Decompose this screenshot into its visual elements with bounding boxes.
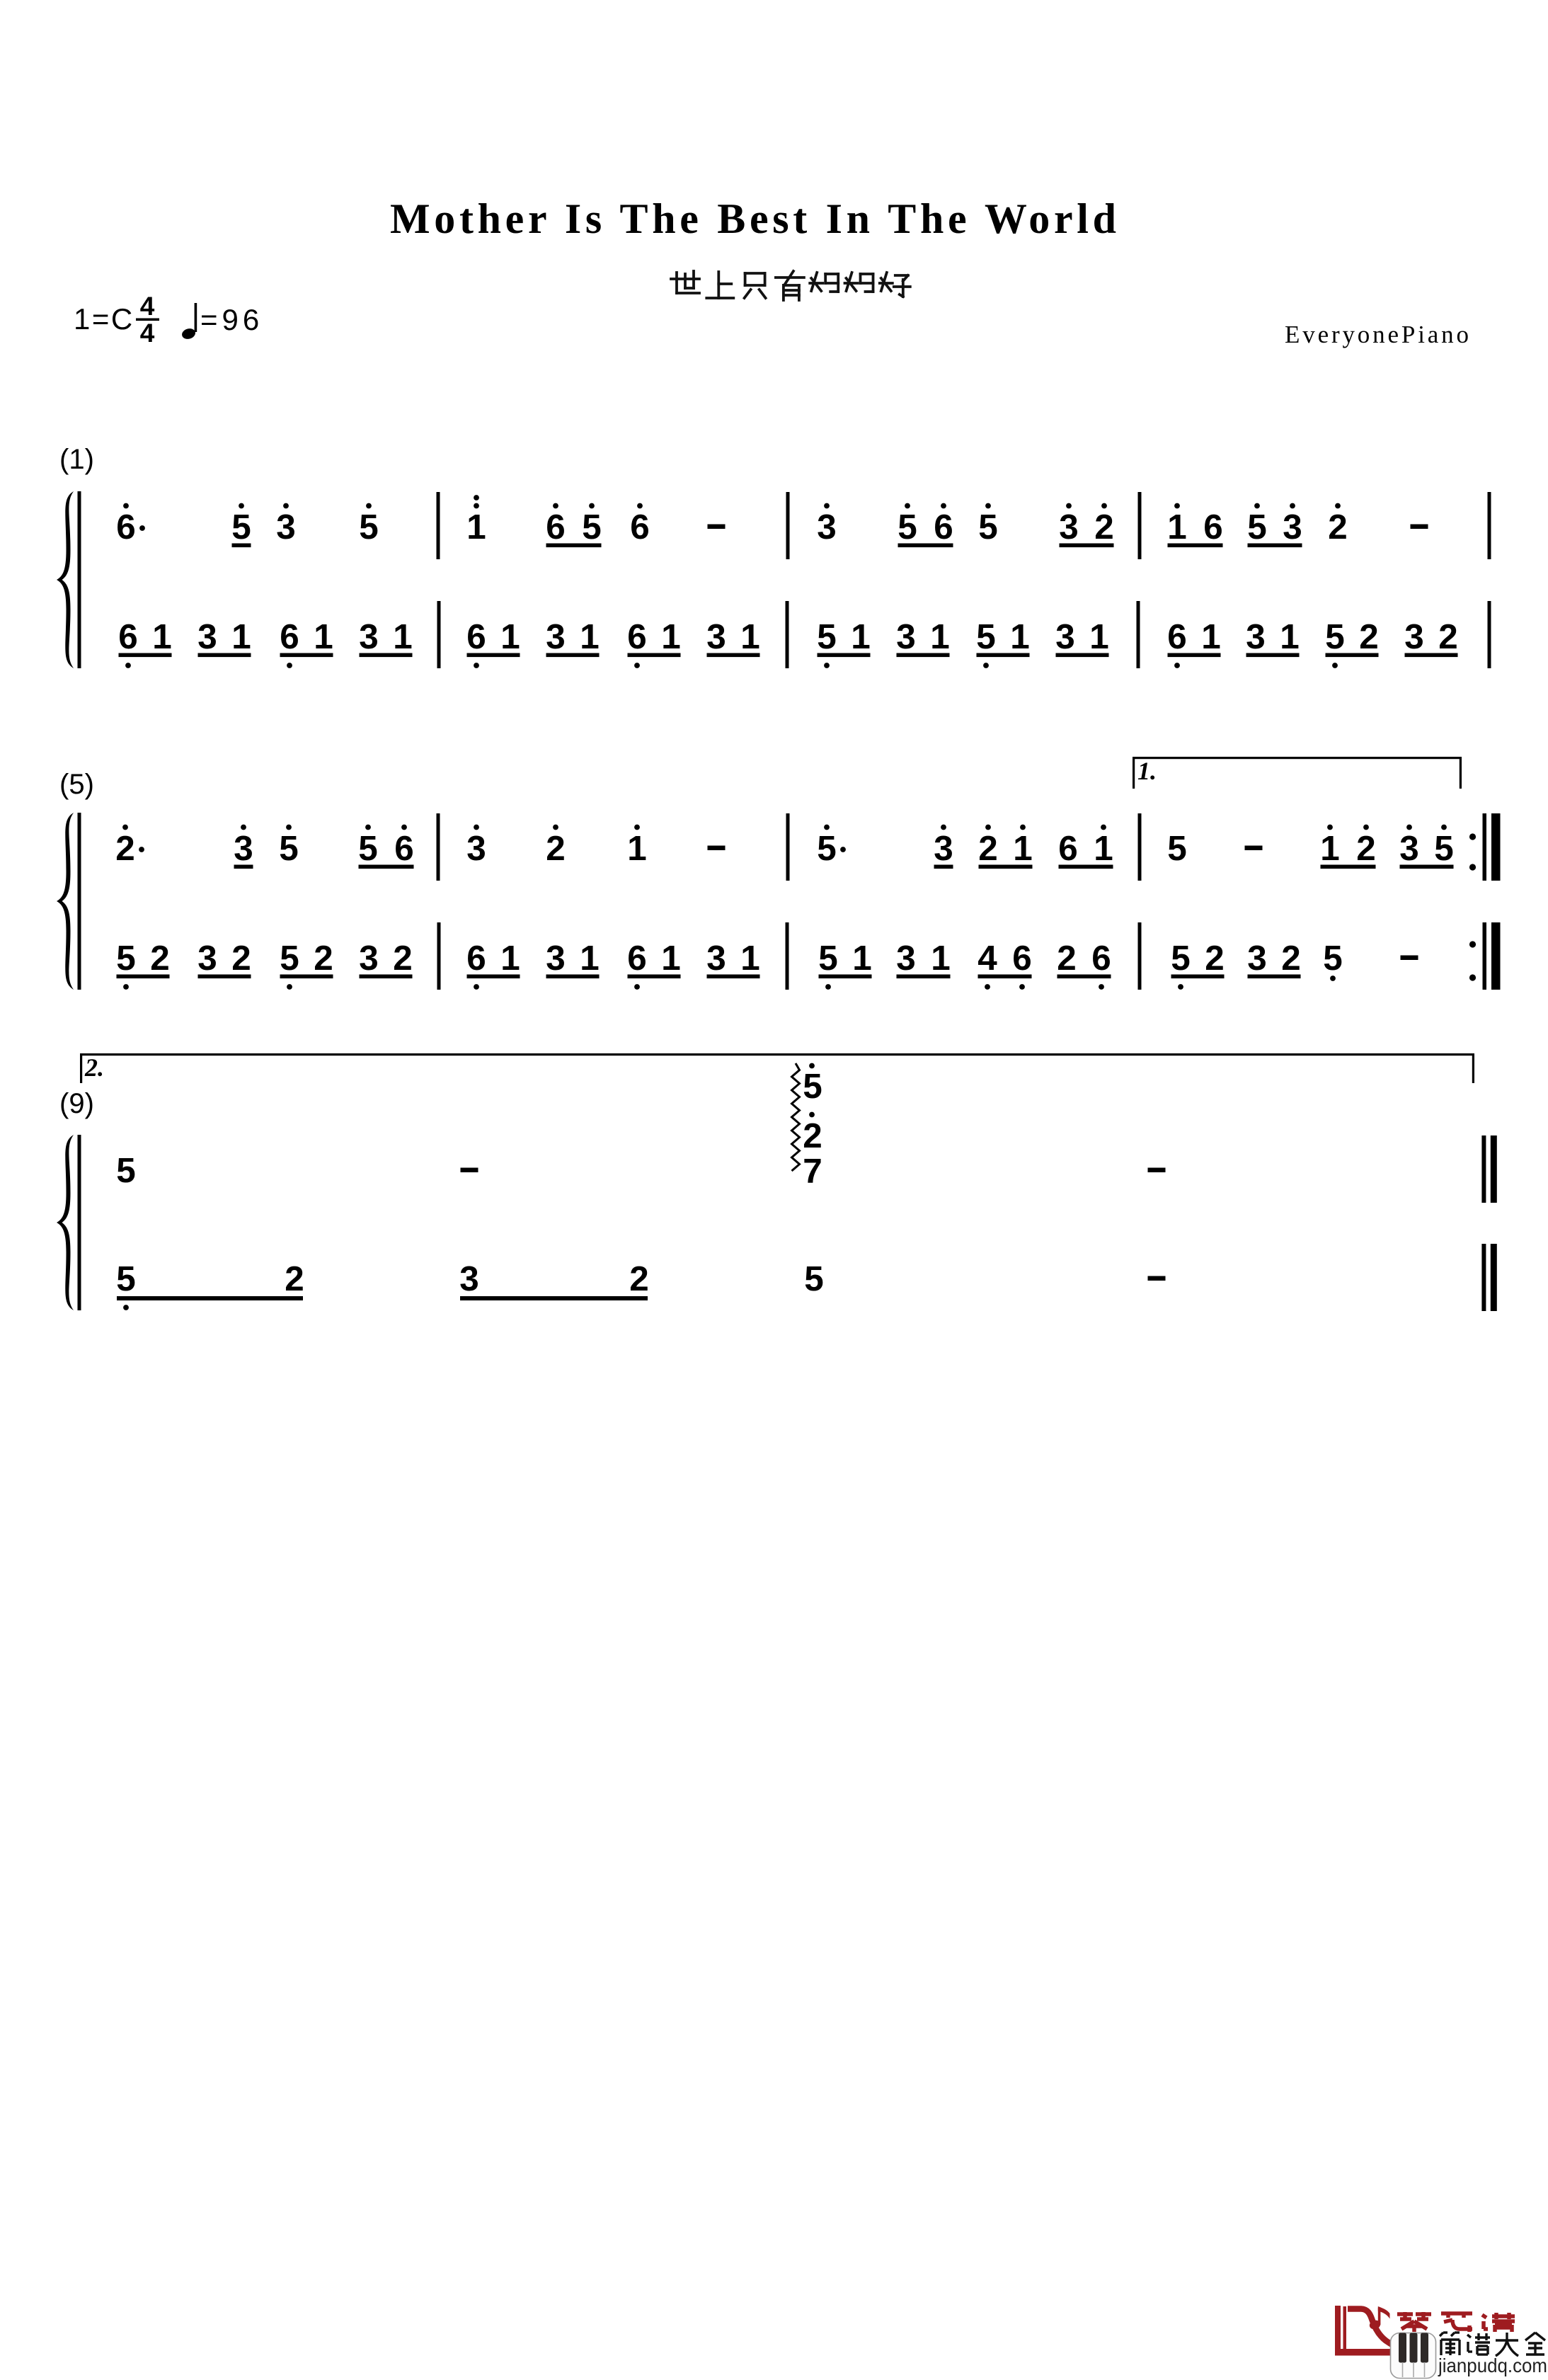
svg-text:1: 1: [500, 617, 520, 656]
svg-text:3: 3: [1283, 508, 1302, 547]
svg-text:2: 2: [285, 1259, 304, 1298]
svg-text:5: 5: [358, 829, 377, 868]
svg-text:2: 2: [978, 829, 997, 868]
svg-text:2: 2: [1281, 939, 1300, 978]
svg-text:5: 5: [804, 1259, 823, 1298]
svg-text:1: 1: [580, 939, 599, 978]
svg-text:3: 3: [706, 617, 726, 656]
svg-text:3: 3: [817, 508, 836, 547]
svg-text:6: 6: [118, 617, 137, 656]
svg-text:5: 5: [817, 829, 836, 868]
svg-text:4: 4: [140, 292, 155, 321]
svg-text:6: 6: [1203, 508, 1222, 547]
svg-text:5: 5: [116, 1151, 135, 1190]
svg-text:5: 5: [1434, 829, 1453, 868]
svg-text:2: 2: [1057, 939, 1076, 978]
svg-text:1: 1: [1089, 617, 1108, 656]
svg-text:2: 2: [1328, 508, 1347, 547]
svg-text:5: 5: [280, 939, 299, 978]
svg-text:3: 3: [896, 617, 915, 656]
svg-text:5: 5: [1167, 829, 1186, 868]
svg-text:1: 1: [1167, 508, 1186, 547]
svg-text:1: 1: [661, 939, 680, 978]
svg-text:1: 1: [393, 617, 412, 656]
svg-text:1: 1: [852, 939, 871, 978]
svg-text:5: 5: [803, 1067, 822, 1106]
svg-text:3: 3: [1399, 829, 1418, 868]
svg-text:1: 1: [466, 508, 486, 547]
svg-text:1: 1: [1201, 617, 1220, 656]
svg-text:3: 3: [896, 939, 915, 978]
svg-text:6: 6: [466, 939, 486, 978]
svg-text:4: 4: [140, 319, 155, 348]
svg-text:3: 3: [197, 617, 217, 656]
svg-text:5: 5: [898, 508, 917, 547]
svg-text:1: 1: [661, 617, 680, 656]
svg-text:5: 5: [1247, 508, 1266, 547]
svg-text:2: 2: [314, 939, 333, 978]
svg-text:6: 6: [1091, 939, 1111, 978]
svg-text:5: 5: [279, 829, 298, 868]
svg-text:5: 5: [582, 508, 601, 547]
svg-text:1: 1: [1010, 617, 1029, 656]
svg-text:3: 3: [1059, 508, 1078, 547]
svg-text:6: 6: [280, 617, 299, 656]
svg-text:6: 6: [627, 939, 646, 978]
svg-text:1: 1: [580, 617, 599, 656]
svg-text:(9): (9): [59, 1088, 94, 1119]
svg-text:1: 1: [1320, 829, 1339, 868]
svg-text:1.: 1.: [1137, 757, 1157, 785]
svg-text:5: 5: [116, 1259, 135, 1298]
svg-text:3: 3: [706, 939, 726, 978]
svg-text:1: 1: [931, 939, 950, 978]
svg-text:1: 1: [314, 617, 333, 656]
svg-text:3: 3: [466, 829, 486, 868]
svg-text:3: 3: [459, 1259, 478, 1298]
svg-text:2: 2: [1359, 617, 1378, 656]
svg-text:6: 6: [1012, 939, 1031, 978]
svg-text:6: 6: [630, 508, 649, 547]
svg-text:3: 3: [546, 939, 565, 978]
svg-text:5: 5: [978, 508, 997, 547]
svg-text:6: 6: [466, 617, 486, 656]
svg-text:jianpudq.com: jianpudq.com: [1438, 2355, 1547, 2376]
svg-text:(5): (5): [59, 769, 94, 800]
svg-text:2: 2: [231, 939, 251, 978]
svg-text:6: 6: [934, 508, 953, 547]
svg-text:1: 1: [152, 617, 171, 656]
svg-text:=96: =96: [200, 303, 263, 336]
svg-text:5: 5: [976, 617, 995, 656]
svg-text:3: 3: [934, 829, 953, 868]
svg-text:5: 5: [818, 939, 837, 978]
svg-text:6: 6: [1167, 617, 1186, 656]
svg-text:1: 1: [930, 617, 949, 656]
svg-text:3: 3: [276, 508, 295, 547]
svg-text:5: 5: [817, 617, 836, 656]
svg-text:1=C: 1=C: [74, 302, 134, 336]
svg-text:5: 5: [1325, 617, 1344, 656]
svg-text:3: 3: [1404, 617, 1423, 656]
svg-text:5: 5: [116, 939, 135, 978]
svg-text:1: 1: [1094, 829, 1113, 868]
svg-text:(1): (1): [59, 444, 94, 475]
svg-text:1: 1: [1013, 829, 1032, 868]
svg-text:3: 3: [546, 617, 565, 656]
svg-text:2: 2: [546, 829, 565, 868]
svg-text:6: 6: [627, 617, 646, 656]
svg-text:2: 2: [150, 939, 169, 978]
svg-text:5: 5: [1323, 939, 1342, 978]
svg-text:1: 1: [740, 939, 759, 978]
svg-text:1: 1: [231, 617, 251, 656]
svg-text:6: 6: [1058, 829, 1077, 868]
svg-text:5: 5: [359, 508, 378, 547]
svg-text:1: 1: [851, 617, 870, 656]
svg-text:6: 6: [116, 508, 135, 547]
svg-text:3: 3: [359, 939, 378, 978]
svg-text:2: 2: [1094, 508, 1113, 547]
svg-text:7: 7: [803, 1152, 822, 1191]
svg-text:2: 2: [1438, 617, 1457, 656]
svg-text:2: 2: [1205, 939, 1224, 978]
svg-text:2.: 2.: [84, 1053, 104, 1082]
svg-text:Mother Is The Best In The Worl: Mother Is The Best In The World: [390, 195, 1116, 242]
svg-text:3: 3: [197, 939, 217, 978]
svg-text:1: 1: [1280, 617, 1299, 656]
svg-text:5: 5: [231, 508, 251, 547]
svg-text:4: 4: [977, 939, 997, 978]
svg-text:3: 3: [1247, 939, 1266, 978]
svg-text:6: 6: [546, 508, 565, 547]
svg-text:2: 2: [1356, 829, 1375, 868]
svg-text:3: 3: [234, 829, 253, 868]
svg-text:3: 3: [1055, 617, 1074, 656]
svg-text:5: 5: [1171, 939, 1190, 978]
svg-text:1: 1: [740, 617, 759, 656]
svg-text:2: 2: [803, 1116, 822, 1155]
svg-text:1: 1: [500, 939, 520, 978]
svg-text:2: 2: [115, 829, 134, 868]
svg-text:6: 6: [394, 829, 413, 868]
svg-text:3: 3: [359, 617, 378, 656]
svg-text:2: 2: [629, 1259, 648, 1298]
svg-text:3: 3: [1246, 617, 1265, 656]
svg-text:EveryonePiano: EveryonePiano: [1285, 321, 1469, 348]
svg-text:2: 2: [393, 939, 412, 978]
svg-text:1: 1: [627, 829, 646, 868]
